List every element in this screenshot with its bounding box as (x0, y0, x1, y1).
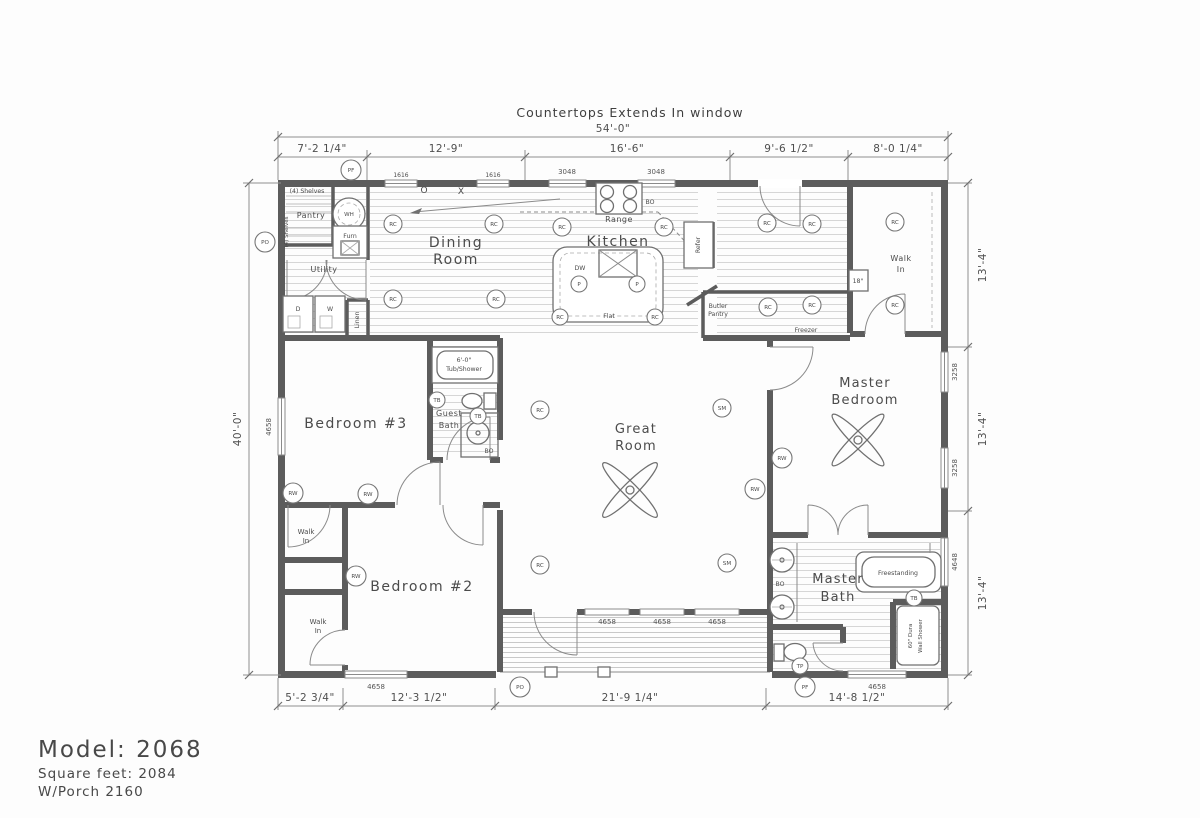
svg-text:RW: RW (750, 487, 760, 493)
window-label: 3048 (558, 168, 576, 176)
dining-label-1: Dining (429, 235, 483, 251)
rc-symbol: RC (655, 218, 673, 236)
master-bath-label-1: Master (812, 572, 864, 587)
svg-text:RC: RC (764, 305, 772, 311)
svg-text:SM: SM (723, 561, 732, 567)
svg-text:RW: RW (363, 492, 373, 498)
window-label: 4658 (265, 418, 273, 436)
pendant-symbol: P (629, 276, 645, 292)
window-label: 4648 (951, 553, 959, 571)
range (596, 183, 642, 214)
bedroom2-door (443, 505, 483, 545)
porch-deck (502, 614, 768, 670)
svg-text:RC: RC (660, 225, 668, 231)
window-3258-a (940, 352, 949, 392)
svg-text:RW: RW (777, 456, 787, 462)
rc-symbol: RC (384, 215, 402, 233)
dim-bottom-2: 21'-9 1/4" (602, 692, 659, 704)
open-x-label: X (458, 187, 464, 197)
window-4658-great-a (585, 608, 629, 616)
window-label: 4658 (598, 618, 616, 626)
floor-plan-page: Range BO Refer DW Flat O X (4) Shelves (… (0, 0, 1200, 818)
svg-text:RC: RC (490, 222, 498, 228)
svg-text:RC: RC (808, 303, 816, 309)
furnace: Furn (333, 226, 367, 258)
great-room-label-2: Room (615, 439, 657, 454)
butler-pantry-label-1: Butler (709, 303, 728, 310)
dim-bottom-0: 5'-2 3/4" (285, 692, 335, 704)
shelf-18: 18" (849, 270, 868, 291)
tb-symbol: TB (429, 392, 445, 408)
kitchen-island: DW Flat (553, 247, 663, 322)
dim-right-0: 13'-4" (977, 248, 989, 283)
dim-right-1: 13'-4" (977, 412, 989, 447)
walkin2-label-1: Walk (310, 618, 328, 626)
wall-shower-label-1: 60" Dura (908, 624, 914, 649)
pantry-shelves-label: (4) Shelves (290, 188, 325, 195)
svg-text:PO: PO (516, 685, 524, 691)
window-4658-masterbath (848, 670, 906, 679)
master-bedroom-fan (828, 410, 888, 470)
guest-toilet (462, 393, 496, 409)
window-label: 4658 (367, 683, 385, 691)
great-room-label-1: Great (615, 422, 657, 437)
walkin-master-label-1: Walk (890, 254, 911, 263)
walkin1-label-2: In (303, 537, 310, 545)
rc-symbol: RC (485, 215, 503, 233)
window-label: 1616 (393, 172, 408, 179)
porch-post (545, 667, 557, 677)
svg-text:RW: RW (288, 491, 298, 497)
window-label: 3258 (951, 459, 959, 477)
rc-symbol: RC (886, 296, 904, 314)
model-info: Model: 2068 Square feet: 2084 W/Porch 21… (38, 737, 203, 800)
shelf-18-label: 18" (853, 278, 864, 285)
po-symbol: PO (510, 677, 530, 697)
svg-text:SM: SM (718, 406, 727, 412)
master-sink-1 (770, 548, 794, 572)
master-bo-label: BO (775, 581, 784, 588)
rc-symbol: RC (647, 309, 663, 325)
svg-text:RC: RC (536, 408, 544, 414)
window-4658-bedroom2 (345, 670, 407, 679)
rc-symbol: RC (759, 298, 777, 316)
water-heater: WH (333, 198, 365, 230)
dim-bottom-3: 14'-8 1/2" (829, 692, 886, 704)
tb-symbol: TB (470, 408, 486, 424)
rw-symbol: RW (772, 448, 792, 468)
floor-plan-drawing: Range BO Refer DW Flat O X (4) Shelves (… (0, 0, 1200, 818)
wall-shower: 60" Dura Wall Shower (897, 606, 939, 665)
rc-symbol: RC (531, 556, 549, 574)
rc-symbol: RC (886, 213, 904, 231)
with-porch-feet: W/Porch 2160 (38, 784, 144, 800)
rc-symbol: RC (531, 401, 549, 419)
wh-label: WH (344, 212, 354, 218)
window-4658-left (277, 398, 286, 455)
kitchen-label: Kitchen (586, 234, 649, 250)
range-bo-label: BO (645, 199, 654, 206)
dim-top-4: 8'-0 1/4" (873, 143, 923, 155)
rc-symbol: RC (758, 214, 776, 232)
porch-post (598, 667, 610, 677)
furn-label: Furn (343, 233, 357, 240)
tub-shower-label-1: 6'-0" (457, 357, 472, 364)
svg-text:PF: PF (348, 168, 355, 174)
rw-symbol: RW (358, 484, 378, 504)
svg-text:RC: RC (891, 220, 899, 226)
guest-bath-label-1: Guest (436, 409, 462, 418)
window-1616-a (385, 179, 417, 188)
rw-symbol: RW (745, 479, 765, 499)
po-symbol: PO (255, 232, 275, 252)
rc-symbol: RC (553, 218, 571, 236)
svg-text:RC: RC (808, 222, 816, 228)
great-room-fan (598, 458, 662, 522)
window-label: 4658 (708, 618, 726, 626)
svg-text:TP: TP (796, 664, 804, 670)
dim-right-2: 13'-4" (977, 576, 989, 611)
dim-overall-height: 40'-0" (232, 412, 244, 447)
dim-overall-width: 54'-0" (596, 123, 631, 135)
guest-bath-label-2: Bath (439, 421, 460, 430)
window-label: 3258 (951, 363, 959, 381)
bedroom3-door (397, 462, 440, 505)
window-4658-great-b (640, 608, 684, 616)
svg-text:RC: RC (389, 297, 397, 303)
window-label: 4658 (653, 618, 671, 626)
window-label: 4658 (868, 683, 886, 691)
linen-label: Linen (354, 312, 361, 329)
svg-text:RC: RC (389, 222, 397, 228)
freezer-label: Freezer (795, 327, 818, 334)
tub-shower-label-2: Tub/Shower (445, 366, 482, 373)
sm-symbol: SM (718, 554, 736, 572)
refer-label: Refer (695, 236, 702, 253)
svg-text:RC: RC (558, 225, 566, 231)
rc-symbol: RC (803, 296, 821, 314)
dim-top-3: 9'-6 1/2" (764, 143, 814, 155)
master-bedroom-label-2: Bedroom (831, 393, 898, 408)
svg-text:PF: PF (802, 685, 809, 691)
svg-text:RC: RC (651, 315, 659, 321)
flat-label: Flat (603, 313, 615, 320)
svg-text:RC: RC (536, 563, 544, 569)
tb-symbol: TB (906, 590, 922, 606)
window-3258-b (940, 448, 949, 488)
master-bath-double-door (808, 505, 868, 535)
svg-text:RC: RC (763, 221, 771, 227)
svg-text:RC: RC (492, 297, 500, 303)
walkin-master-label-2: In (897, 265, 905, 274)
window-3048-b (638, 179, 675, 188)
rw-symbol: RW (346, 566, 366, 586)
svg-text:PO: PO (261, 240, 269, 246)
plan-note: Countertops Extends In window (516, 105, 743, 120)
dim-top-2: 16'-6" (610, 143, 645, 155)
pendant-symbol: P (571, 276, 587, 292)
dryer-label: D (296, 306, 301, 313)
master-bedroom-door (770, 347, 813, 390)
svg-text:RC: RC (891, 303, 899, 309)
butler-pantry-label-2: Pantry (708, 311, 728, 318)
rc-symbol: RC (384, 290, 402, 308)
walkin1-label-1: Walk (298, 528, 316, 536)
model-number: Model: 2068 (38, 737, 203, 763)
svg-text:RW: RW (351, 574, 361, 580)
guest-tub: 6'-0" Tub/Shower (432, 347, 498, 383)
svg-text:RC: RC (556, 315, 564, 321)
rc-symbol: RC (552, 309, 568, 325)
range-label: Range (605, 215, 633, 224)
open-o-label: O (420, 186, 427, 196)
washer-label: W (327, 306, 333, 313)
rw-symbol: RW (283, 483, 303, 503)
sm-symbol: SM (713, 399, 731, 417)
walkin2-label-2: In (315, 627, 322, 635)
master-bath-label-2: Bath (820, 590, 855, 605)
pf-symbol: PF (795, 677, 815, 697)
window-4658-great-c (695, 608, 739, 616)
svg-text:TB: TB (432, 398, 440, 404)
dim-top-0: 7'-2 1/4" (297, 143, 347, 155)
window-1616-b (477, 179, 509, 188)
master-sink-2 (770, 595, 794, 619)
square-feet: Square feet: 2084 (38, 766, 177, 782)
bedroom2-label: Bedroom #2 (370, 579, 473, 595)
dim-bottom-1: 12'-3 1/2" (391, 692, 448, 704)
tp-symbol: TP (792, 658, 808, 674)
freestanding-label: Freestanding (878, 570, 918, 577)
svg-text:TB: TB (909, 596, 917, 602)
window-label: 3048 (647, 168, 665, 176)
svg-text:TB: TB (473, 414, 481, 420)
dishwasher-label: DW (575, 265, 586, 272)
pantry-label: Pantry (297, 211, 326, 220)
back-door-opening (758, 179, 802, 188)
pantry-shelves-label-vert: (4) Shelves (284, 216, 290, 247)
wall-shower-label-2: Wall Shower (918, 618, 924, 652)
pf-symbol: PF (341, 160, 361, 180)
dim-top-1: 12'-9" (429, 143, 464, 155)
utility-label: Utility (310, 265, 337, 274)
window-3048-a (549, 179, 586, 188)
bedroom3-label: Bedroom #3 (304, 416, 407, 432)
window-label: 1616 (485, 172, 500, 179)
refrigerator: Refer (684, 222, 713, 268)
master-bedroom-label-1: Master (839, 376, 891, 391)
rc-symbol: RC (487, 290, 505, 308)
rc-symbol: RC (803, 215, 821, 233)
dining-label-2: Room (433, 252, 479, 268)
guest-bo-label: BO (484, 448, 493, 455)
walkin2-door (310, 630, 345, 665)
